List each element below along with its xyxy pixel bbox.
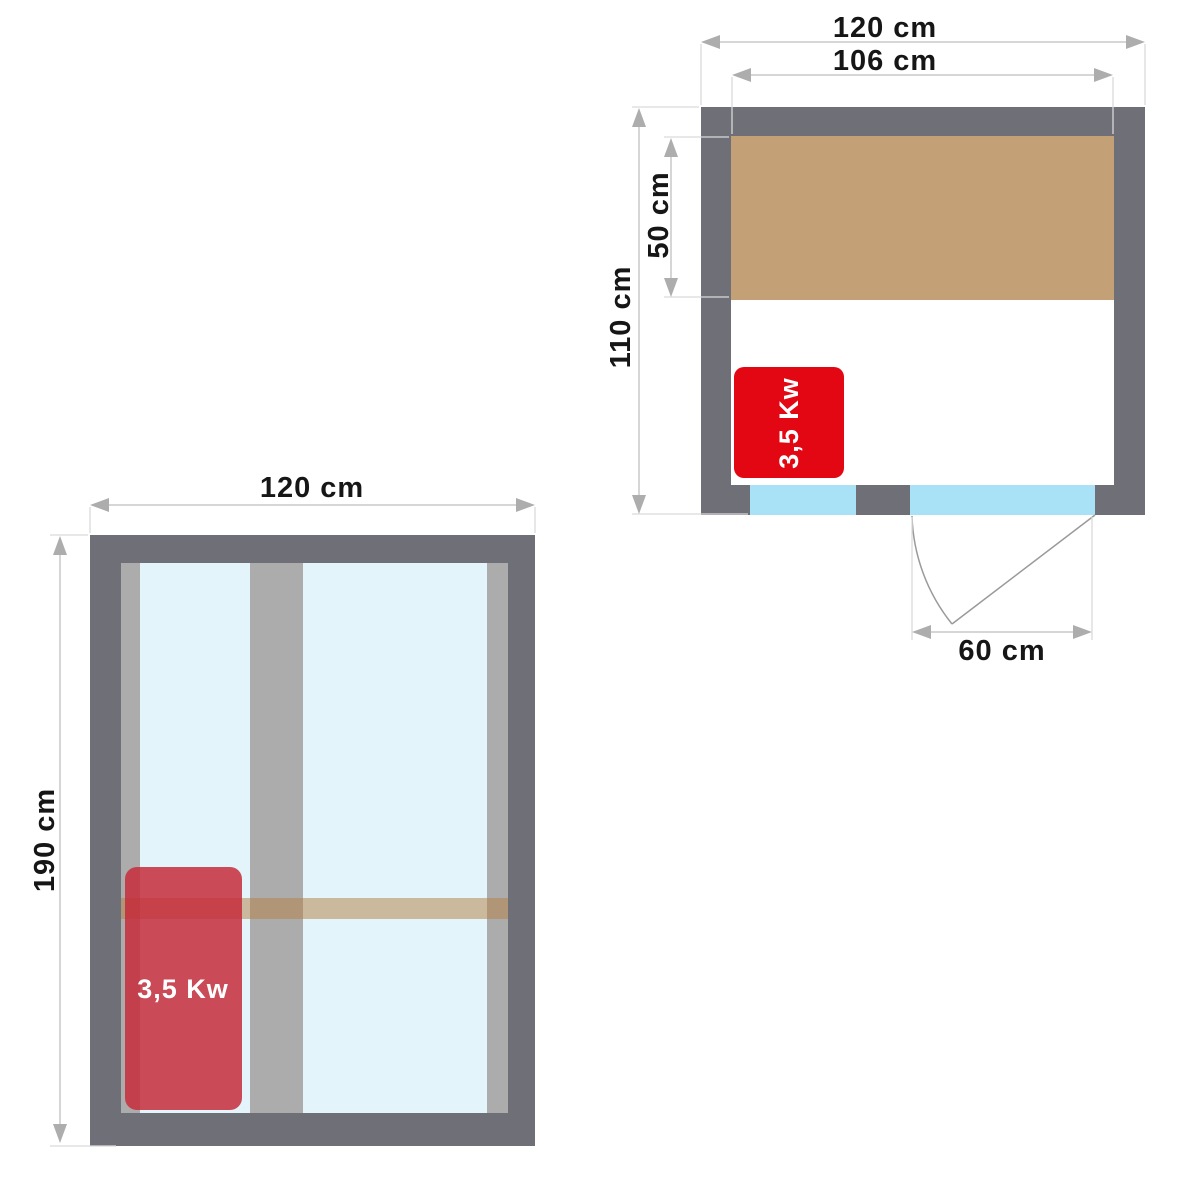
elevation-heater-label-group: 3,5 Kw [137,974,229,1004]
door-leaf [952,515,1095,624]
sauna-dimension-diagram: 3,5 Kw 3,5 Kw [0,0,1200,1200]
plan-view: 3,5 Kw [701,107,1145,624]
plan-heater-label-group: 3,5 Kw [774,377,804,469]
diagram-svg: 3,5 Kw 3,5 Kw [0,0,1200,1200]
elevation-center-mullion [250,563,303,1113]
elevation-view: 3,5 Kw [90,535,535,1146]
elevation-heater-label: 3,5 Kw [137,974,229,1004]
plan-window-glass [750,485,856,515]
plan-outer-width-label: 120 cm [833,12,937,44]
plan-bench [731,136,1114,300]
plan-inner-width-label: 106 cm [833,45,937,77]
plan-heater-label: 3,5 Kw [774,377,804,469]
plan-door-glass [910,485,1095,515]
elevation-right-strip [487,563,508,1113]
elevation-width-label: 120 cm [260,472,364,504]
plan-door-width-label: 60 cm [958,635,1045,667]
elevation-height-label: 190 cm [29,788,61,892]
door-swing-arc [912,516,952,624]
door-swing-group [912,515,1095,624]
plan-bench-depth-label: 50 cm [643,171,675,258]
plan-depth-label: 110 cm [605,266,637,369]
